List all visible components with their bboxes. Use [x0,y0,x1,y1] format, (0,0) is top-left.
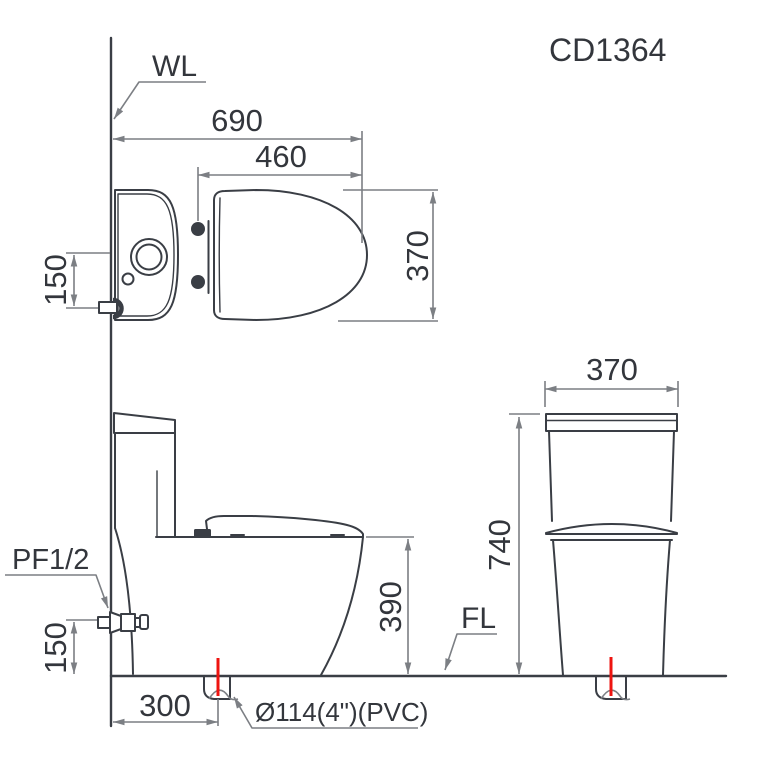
floor-line-leader-arrow [445,634,497,670]
drain-outlet-front [596,657,630,700]
dim-overall-width-plan: 370 [338,190,438,321]
bowl-back-curve [115,528,133,674]
dim-rough-in: 300 [113,688,218,726]
drain-pipe-callout: Ø114(4")(PVC) [234,697,428,728]
technical-drawing-sheet: CD1364 WL 690 460 370 [0,0,768,769]
dim-seat-ring-length-value: 460 [255,139,307,174]
floor-line-callout: FL [445,602,497,670]
tank-right-edge [671,431,674,521]
supply-callout: PF1/2 [5,544,108,608]
tank-lid-front [546,414,677,431]
bowl-left-edge [553,540,563,675]
dim-overall-height: 740 [482,414,540,674]
seat-lid-profile [206,516,363,537]
dim-rough-in-value: 300 [139,688,191,723]
valve-body [121,614,135,631]
toilet-spec-drawing: CD1364 WL 690 460 370 [0,0,768,769]
seat-hinge-side [194,529,211,537]
dim-rim-height: 390 [366,537,414,674]
seat-lid-seam [219,198,220,312]
dim-supply-height: 150 [38,620,97,674]
seat-hinge-dot-top [191,222,205,236]
seat-lid-outline-plan [214,190,367,320]
dim-rim-height-value: 390 [373,581,408,633]
supply-leader-arrow [5,575,108,608]
tank-inner-outline-plan [118,194,174,316]
bowl-right-edge [663,540,670,675]
wall-line-callout: WL [114,50,206,119]
tank-left-edge [549,431,552,521]
water-supply-label: PF1/2 [12,544,89,576]
model-code: CD1364 [549,32,666,68]
front-view [546,414,677,700]
wall-line-label: WL [152,50,197,83]
dim-overall-length: 690 [113,103,362,243]
tank-lid-side [114,413,175,433]
dim-overall-width-value: 370 [400,230,435,282]
dim-tank-width: 370 [545,352,678,407]
supply-valve [98,612,148,633]
bowl-front-curve [321,537,363,675]
dim-supply-offset-value: 150 [38,254,73,306]
dim-overall-length-value: 690 [211,103,263,138]
dim-overall-height-value: 740 [482,519,517,571]
top-view [99,190,367,320]
valve-stub [98,617,110,628]
seat-hinge-dot-bottom [191,275,205,289]
valve-flange [110,612,121,633]
dim-supply-height-value: 150 [38,622,73,674]
dim-tank-width-value: 370 [586,352,638,387]
supply-stub-plan [99,302,117,313]
flush-button-inner [137,245,162,270]
valve-cap [140,615,148,629]
tank-lid-pin [123,274,134,285]
dim-supply-offset: 150 [38,253,110,308]
seat-top-arc [546,524,677,533]
drain-pipe-label: Ø114(4")(PVC) [255,697,428,727]
floor-line-label: FL [461,602,496,635]
drain-outlet-side [204,658,238,700]
wall-line-leader-arrow [114,82,206,119]
side-view [98,413,363,700]
